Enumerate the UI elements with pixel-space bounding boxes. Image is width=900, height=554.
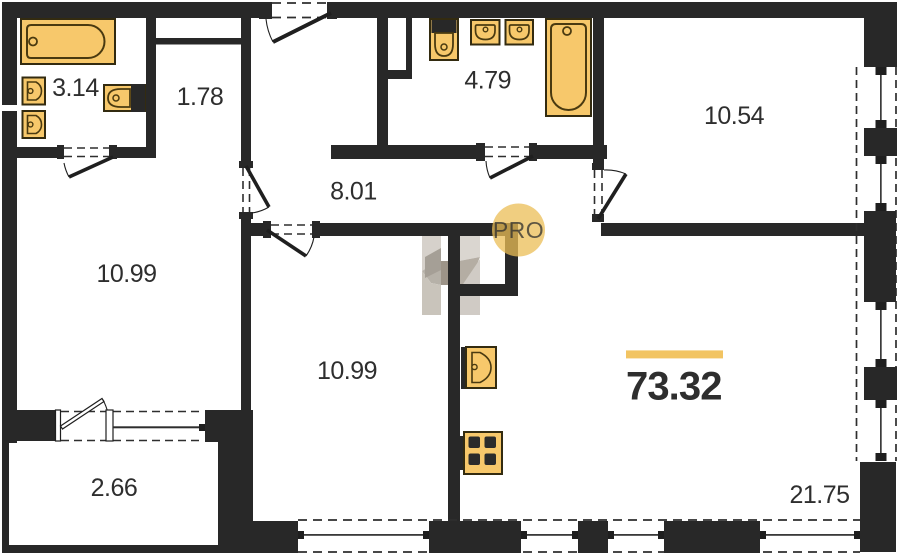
svg-text:3.14: 3.14: [52, 74, 99, 102]
svg-text:1.78: 1.78: [177, 83, 224, 111]
svg-text:4.79: 4.79: [464, 67, 511, 95]
svg-text:10.54: 10.54: [704, 102, 765, 130]
svg-text:73.32: 73.32: [626, 364, 722, 408]
svg-text:2.66: 2.66: [91, 474, 138, 502]
svg-text:8.01: 8.01: [330, 178, 377, 206]
svg-text:10.99: 10.99: [317, 357, 377, 385]
svg-text:PRO: PRO: [493, 217, 544, 243]
svg-text:21.75: 21.75: [789, 481, 849, 509]
svg-text:10.99: 10.99: [96, 260, 156, 288]
